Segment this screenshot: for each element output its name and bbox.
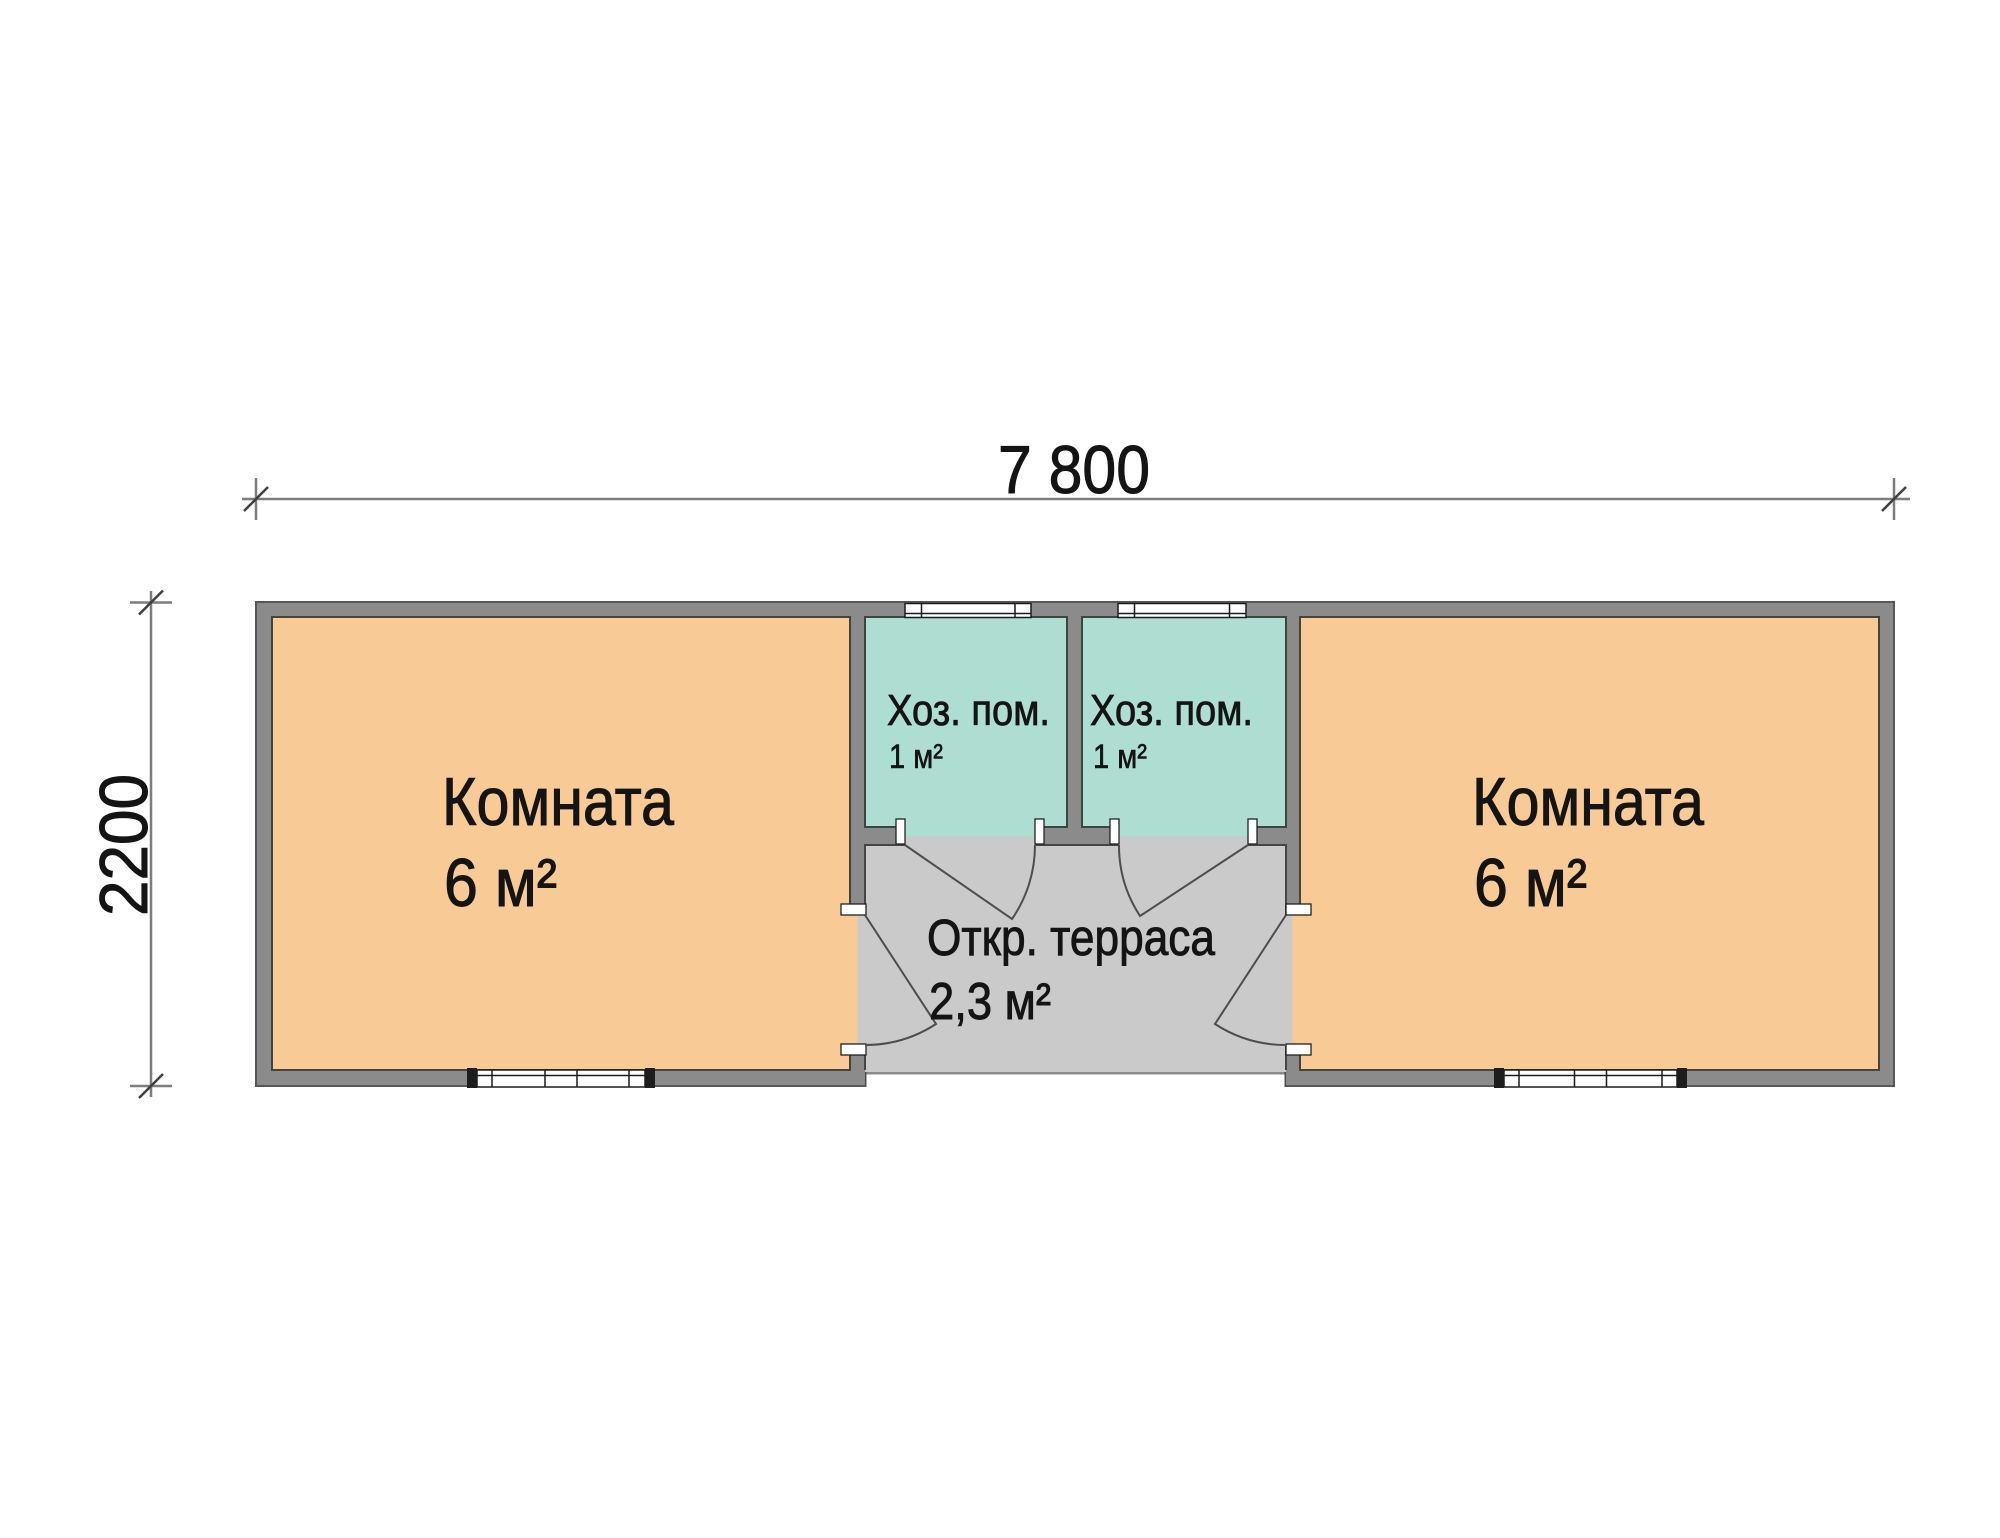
svg-text:1 м²: 1 м² bbox=[889, 738, 943, 776]
svg-text:Откр. терраса: Откр. терраса bbox=[927, 909, 1216, 966]
svg-text:6 м²: 6 м² bbox=[1474, 845, 1587, 921]
svg-text:7 800: 7 800 bbox=[998, 432, 1150, 508]
svg-text:2,3 м²: 2,3 м² bbox=[929, 973, 1051, 1031]
svg-text:6 м²: 6 м² bbox=[444, 845, 557, 921]
svg-text:1 м²: 1 м² bbox=[1093, 738, 1147, 776]
svg-text:Хоз. пом.: Хоз. пом. bbox=[1090, 686, 1253, 735]
svg-text:2200: 2200 bbox=[86, 774, 162, 916]
svg-text:Комната: Комната bbox=[442, 764, 674, 840]
svg-text:Хоз. пом.: Хоз. пом. bbox=[887, 686, 1050, 735]
svg-text:Комната: Комната bbox=[1472, 764, 1704, 840]
